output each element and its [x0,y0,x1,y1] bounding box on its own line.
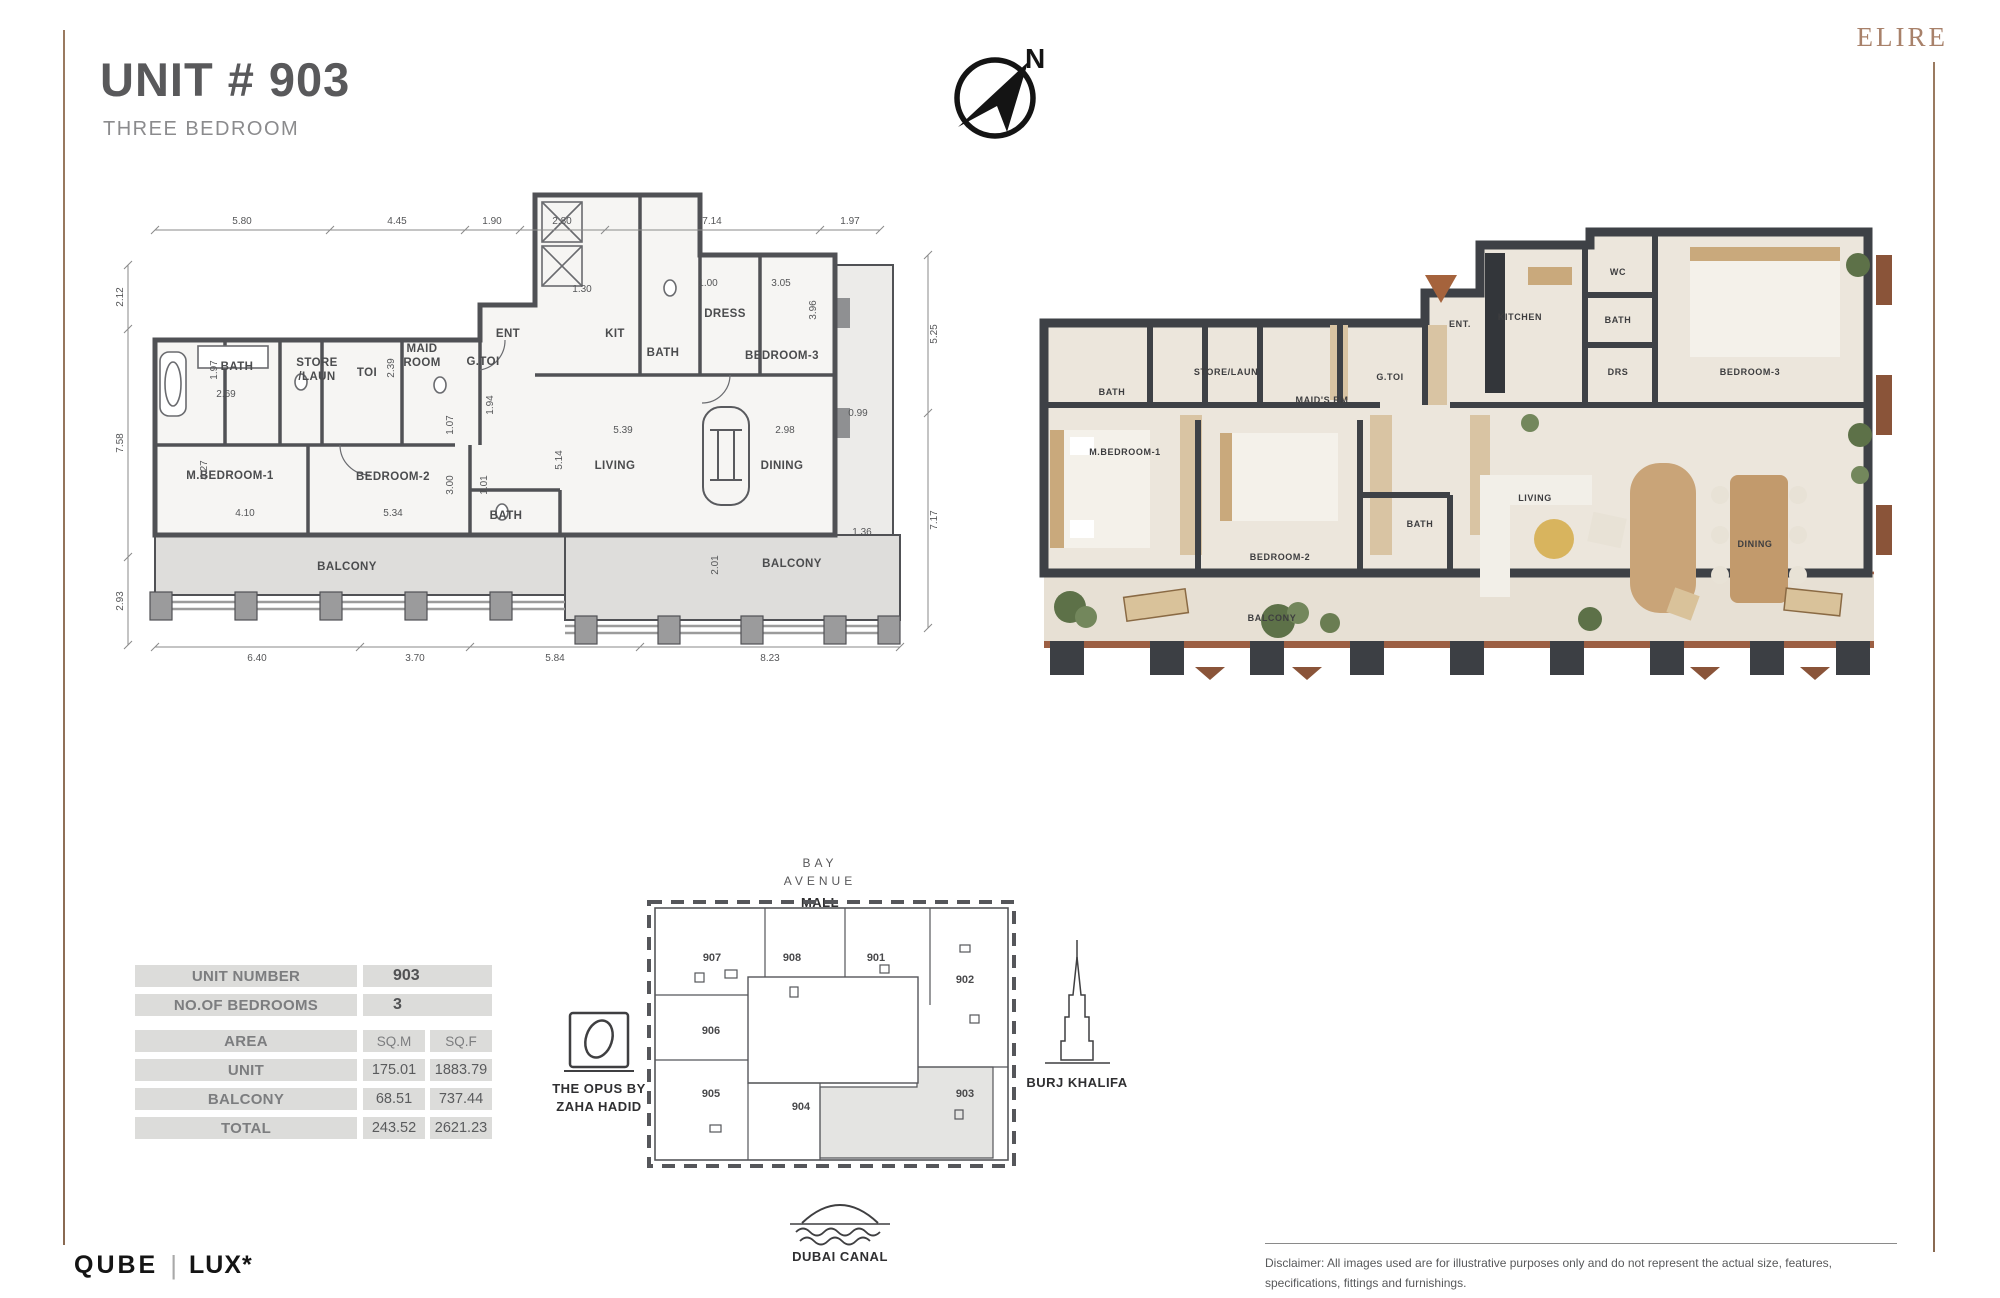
right-accent-line [1933,62,1935,1252]
dim-099: 0.99 [848,408,868,419]
dim-right-1: 5.25 [929,324,940,344]
table-row-unit: UNIT 175.01 1883.79 [135,1059,492,1081]
dim-left-2: 7.58 [115,433,126,453]
living-scale-object [703,407,749,505]
dim-bottom-1: 6.40 [247,653,267,664]
unit-sqm: 175.01 [363,1059,425,1081]
render-label-drs: DRS [1608,367,1629,377]
unit-sqf: 1883.79 [430,1059,492,1081]
dim-201: 2.01 [710,555,721,575]
site-unit-904: 904 [792,1101,811,1113]
balcony-row-label: BALCONY [135,1088,357,1110]
balcony-right-area [565,535,900,620]
bay-avenue-label-2: AVENUE [784,874,856,888]
dim-269: 2.69 [216,389,236,400]
brochure-page: UNIT # 903 THREE BEDROOM ELIRE N [0,0,2000,1298]
building-core [748,977,918,1083]
render-label-storelaun: STORE/LAUN [1194,367,1258,377]
room-label-living: LIVING [595,460,636,472]
dim-298: 2.98 [775,425,795,436]
dim-427: 4.27 [199,460,210,480]
room-label-maid-1: MAID [407,343,438,355]
site-unit-906: 906 [702,1025,720,1037]
brand-logo: ELIRE [1857,22,1948,53]
burj-khalifa-icon [1045,940,1110,1063]
unit-row-label: UNIT [135,1059,357,1081]
sqf-header: SQ.F [430,1030,492,1052]
room-label-maid-2: ROOM [403,357,440,369]
dubai-canal-label: DUBAI CANAL [792,1249,888,1264]
room-label-bath1: BATH [221,361,254,373]
balcony-sqf: 737.44 [430,1088,492,1110]
dim-bottom-3: 5.84 [545,653,565,664]
render-label-living: LIVING [1518,493,1552,503]
room-label-bath3: BATH [490,510,523,522]
dim-101: 1.01 [479,475,490,495]
total-row-label: TOTAL [135,1117,357,1139]
dim-top-1: 5.80 [232,216,252,227]
room-label-bath2: BATH [647,347,680,359]
room-label-ent: ENT [496,328,520,340]
room-label-laun: /LAUN [298,371,335,383]
room-label-bedroom2: BEDROOM-2 [356,471,430,483]
dim-top-4: 2.80 [552,216,572,227]
render-label-maid: MAID'S RM [1295,395,1348,405]
render-label-mbedroom1: M.BEDROOM-1 [1089,447,1161,457]
room-label-balcony2: BALCONY [762,558,822,570]
room-label-dress: DRESS [704,308,746,320]
render-label-bath2: BATH [1407,519,1434,529]
dim-534: 5.34 [383,508,403,519]
left-accent-line [63,30,65,1245]
render-label-bath1: BATH [1099,387,1126,397]
logo-qube: QUBE [74,1251,158,1280]
developer-logo: QUBE | LUX* [74,1250,253,1281]
opus-label-1: THE OPUS BY [552,1081,646,1096]
opus-icon [564,1013,634,1071]
dim-300: 3.00 [445,475,456,495]
dim-bottom-2: 3.70 [405,653,425,664]
total-sqf: 2621.23 [430,1117,492,1139]
site-unit-903: 903 [956,1088,974,1100]
render-label-gtoi: G.TOI [1376,372,1403,382]
rendered-floorplan: BATH STORE/LAUN MAID'S RM G.TOI ENT. M.B… [1030,175,1900,695]
dim-107: 1.07 [445,415,456,435]
disclaimer-line-2: specifications, fittings and furnishings… [1265,1273,1897,1293]
dim-top-6: 1.97 [840,216,860,227]
room-label-store: STORE [296,357,337,369]
opus-label-2: ZAHA HADID [556,1099,641,1114]
site-unit-907: 907 [703,952,721,964]
dim-left-3: 2.93 [115,591,126,611]
site-unit-908: 908 [783,952,801,964]
table-row-balcony: BALCONY 68.51 737.44 [135,1088,492,1110]
logo-divider: | [170,1250,177,1281]
render-label-bath3: BATH [1605,315,1632,325]
site-unit-902: 902 [956,974,974,986]
page-subtitle: THREE BEDROOM [103,118,299,141]
dim-bottom-4: 8.23 [760,653,780,664]
dim-130: 1.30 [572,284,592,295]
room-label-bedroom3: BEDROOM-3 [745,350,819,362]
unit-number-value: 903 [363,965,492,987]
render-label-ent: ENT. [1449,319,1471,329]
balcony-sqm: 68.51 [363,1088,425,1110]
total-sqm: 243.52 [363,1117,425,1139]
room-label-toi: TOI [357,367,377,379]
site-unit-905: 905 [702,1088,720,1100]
render-side-deck [1876,255,1892,555]
sqm-header: SQ.M [363,1030,425,1052]
disclaimer-text: Disclaimer: All images used are for illu… [1265,1243,1897,1293]
table-row: NO.OF BEDROOMS 3 [135,994,492,1016]
room-label-kit: KIT [605,328,625,340]
dim-top-2: 4.45 [387,216,407,227]
dim-top-5: 7.14 [702,216,722,227]
dim-197: 1.97 [209,360,220,380]
bedrooms-value: 3 [363,994,492,1016]
dim-396: 3.96 [808,300,819,320]
dim-right-2: 7.17 [929,510,940,530]
dim-136: 1.36 [852,527,872,538]
page-title: UNIT # 903 [100,52,350,107]
render-label-kitchen: KITCHEN [1498,312,1542,322]
dim-305: 3.05 [771,278,791,289]
site-key-plan: BAY AVENUE MALL 907 908 901 902 906 905 … [540,845,1130,1265]
table-row-total: TOTAL 243.52 2621.23 [135,1117,492,1139]
room-label-gtoi: G.TOI [466,356,499,368]
render-label-balcony: BALCONY [1248,613,1297,623]
table-row: UNIT NUMBER 903 [135,965,492,987]
dim-539: 5.39 [613,425,633,436]
compass-icon: N [945,30,1055,140]
room-label-dining: DINING [761,460,804,472]
disclaimer-line-1: Disclaimer: All images used are for illu… [1265,1253,1897,1273]
technical-floorplan: 5.80 4.45 1.90 2.80 7.14 1.97 2.12 7.58 … [110,180,950,670]
render-deck-triangles [1195,667,1830,680]
unit-number-label: UNIT NUMBER [135,965,357,987]
dubai-canal-icon [790,1205,890,1245]
dim-194: 1.94 [485,395,496,415]
bedrooms-label: NO.OF BEDROOMS [135,994,357,1016]
unit-area-table: UNIT NUMBER 903 NO.OF BEDROOMS 3 AREA SQ… [135,965,492,1146]
burj-khalifa-label: BURJ KHALIFA [1026,1075,1127,1090]
compass-north-label: N [1025,43,1045,74]
dim-410: 4.10 [235,508,255,519]
render-label-bedroom3: BEDROOM-3 [1720,367,1780,377]
dim-514: 5.14 [554,450,565,470]
render-label-bedroom2: BEDROOM-2 [1250,552,1310,562]
dim-top-3: 1.90 [482,216,502,227]
logo-lux: LUX* [189,1251,253,1280]
render-label-wc: WC [1610,267,1626,277]
site-unit-901: 901 [867,952,885,964]
room-label-balcony1: BALCONY [317,561,377,573]
dim-239: 2.39 [386,358,397,378]
table-header-row: AREA SQ.M SQ.F [135,1030,492,1052]
dim-100: 1.00 [698,278,718,289]
area-header: AREA [135,1030,357,1052]
dim-left-1: 2.12 [115,287,126,307]
render-label-dining: DINING [1737,539,1772,549]
bay-avenue-label-1: BAY [802,856,837,870]
